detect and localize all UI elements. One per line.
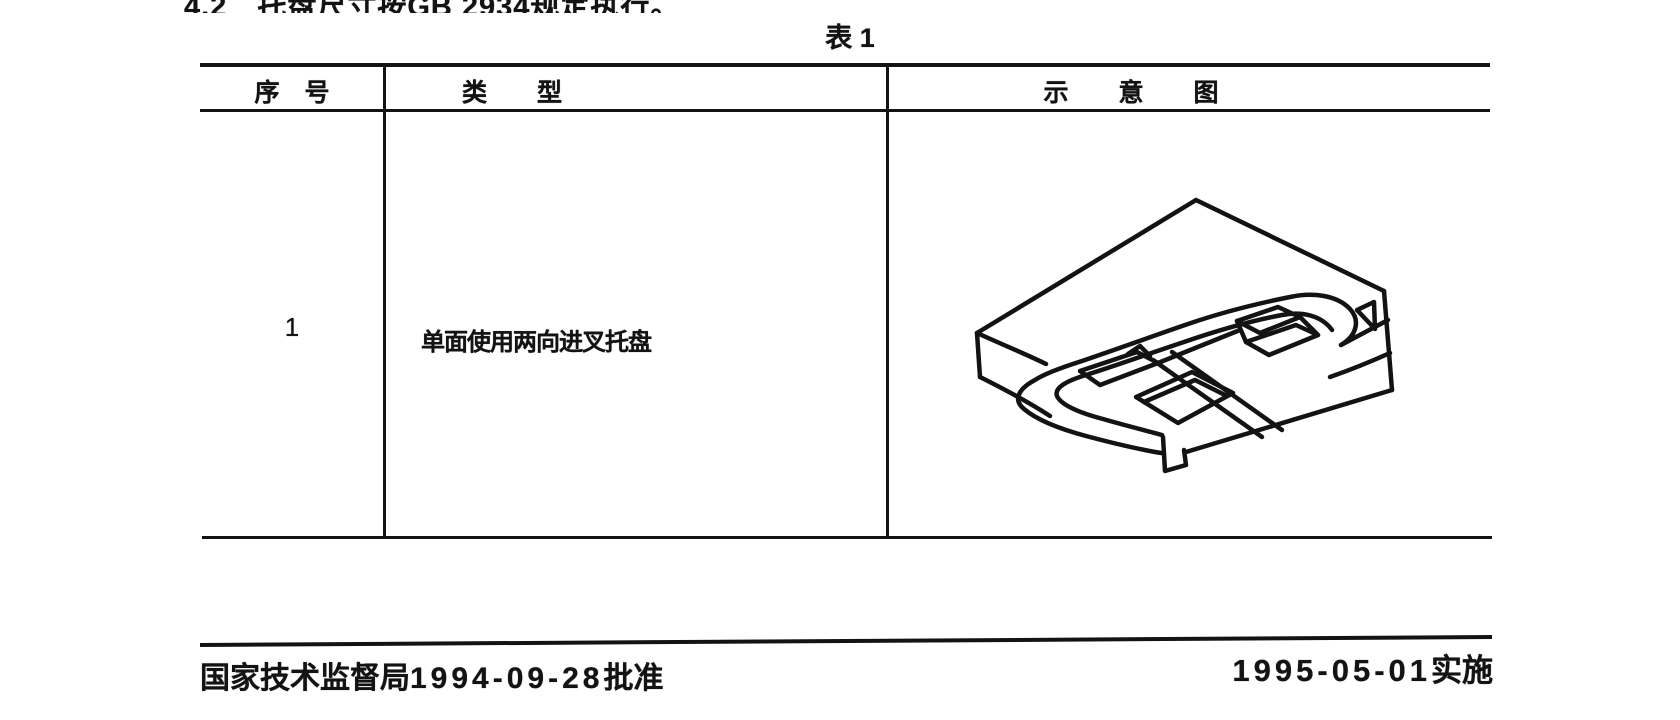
implementation-date: 1995-05-01 bbox=[1232, 653, 1431, 688]
clipped-paragraph-line: 4.2 托盘尺寸按GB 2934规定执行。 bbox=[184, 0, 784, 13]
cell-pallet-type: 单面使用两向进叉托盘 bbox=[386, 322, 686, 357]
table-header-divider bbox=[200, 109, 1490, 112]
approval-line: 国家技术监督局1994-09-28批准 bbox=[200, 653, 663, 697]
table-column-divider-1 bbox=[383, 63, 386, 539]
table-caption: 表 1 bbox=[790, 16, 910, 55]
cell-serial-number: 1 bbox=[200, 312, 384, 343]
scanned-standard-page: { "page": { "top_clipped_line": "4.2 托盘尺… bbox=[0, 0, 1680, 720]
column-header-schematic: 示 意 图 bbox=[886, 73, 1376, 109]
approval-suffix: 批准 bbox=[603, 662, 663, 695]
clipped-paragraph-text: 4.2 托盘尺寸按GB 2934规定执行。 bbox=[184, 0, 680, 13]
column-header-type: 类 型 bbox=[462, 73, 562, 109]
approval-org: 国家技术监督局 bbox=[200, 662, 410, 695]
table-top-border bbox=[200, 63, 1490, 67]
approval-date: 1994-09-28 bbox=[410, 662, 603, 695]
column-header-serial-number: 序 号 bbox=[200, 73, 384, 109]
implementation-suffix: 实施 bbox=[1431, 653, 1493, 688]
table-bottom-border bbox=[202, 536, 1492, 539]
pallet-isometric-line-drawing bbox=[880, 160, 1400, 490]
implementation-line: 1995-05-01实施 bbox=[1100, 645, 1493, 690]
